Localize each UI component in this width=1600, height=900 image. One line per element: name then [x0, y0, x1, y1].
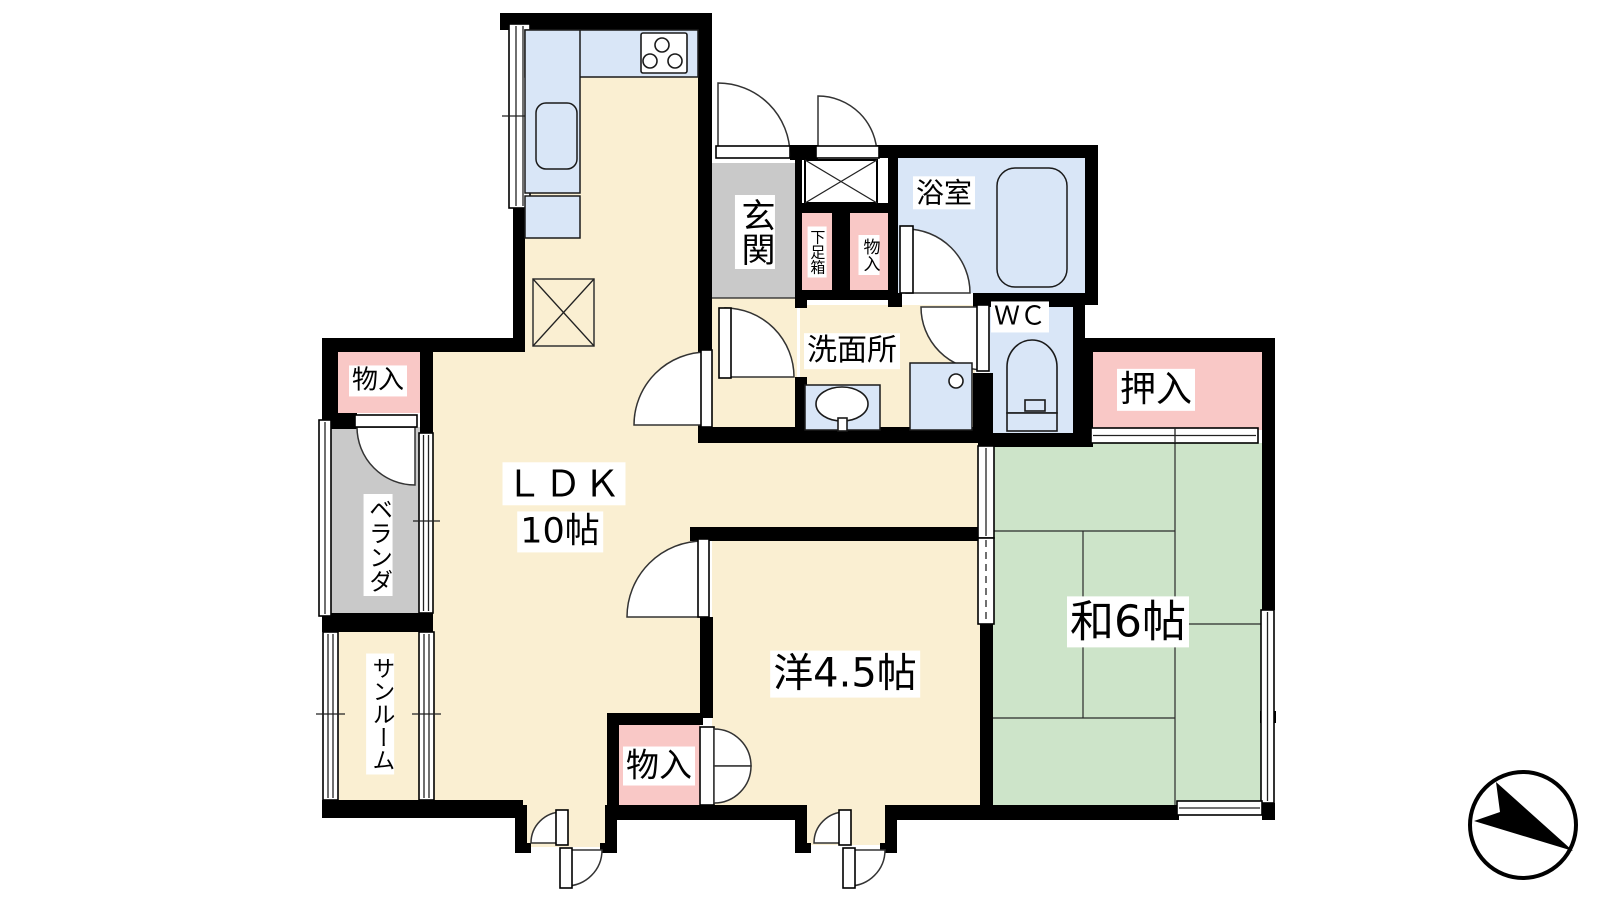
refrigerator-space — [525, 196, 580, 238]
room-label-storage-bottom: 物入 — [623, 747, 695, 786]
room-label-veranda: ベランダ — [364, 494, 393, 596]
room-label-storage-west: 物入 — [349, 365, 407, 396]
stove — [641, 33, 687, 73]
veranda-railing — [319, 420, 331, 616]
entrance-door — [716, 83, 790, 158]
room-label-ldk-size: 10帖 — [517, 511, 603, 552]
room-label-ldk: ＬＤＫ — [503, 462, 626, 505]
outside-storage-box — [805, 160, 877, 203]
floor-plan-drawing — [0, 0, 1600, 900]
room-label-oshiire: 押入 — [1117, 369, 1195, 411]
japanese-room-sliding-door — [978, 446, 994, 538]
room-label-western: 洋4.5帖 — [770, 651, 920, 698]
room-label-bath: 浴室 — [913, 176, 975, 209]
floor-plan: ＬＤＫ 10帖 洋4.5帖 和6帖 押入 玄関 下足箱 物入 浴室 洗面所 ＷＣ… — [0, 0, 1600, 900]
room-label-wc: ＷＣ — [991, 301, 1049, 332]
dashed-partition — [978, 538, 994, 624]
room-label-shoe-box: 下足箱 — [808, 227, 827, 278]
washbasin — [805, 385, 880, 431]
toilet — [1007, 340, 1057, 431]
room-label-storage-entry: 物入 — [858, 235, 879, 275]
bathtub — [997, 168, 1067, 287]
room-label-washroom: 洗面所 — [804, 333, 900, 369]
washing-machine-pan — [910, 363, 972, 430]
japanese-room-east-window — [1261, 610, 1274, 803]
oshiire-sliding-door — [1091, 428, 1258, 443]
outside-storage-door — [816, 96, 879, 158]
japanese-room-south-window — [1177, 801, 1262, 815]
room-label-genkan: 玄関 — [735, 195, 775, 269]
compass-icon — [1470, 772, 1576, 878]
room-label-japanese: 和6帖 — [1067, 596, 1189, 647]
kitchen-sink — [536, 103, 577, 169]
room-label-sunroom: サンルーム — [366, 654, 394, 775]
